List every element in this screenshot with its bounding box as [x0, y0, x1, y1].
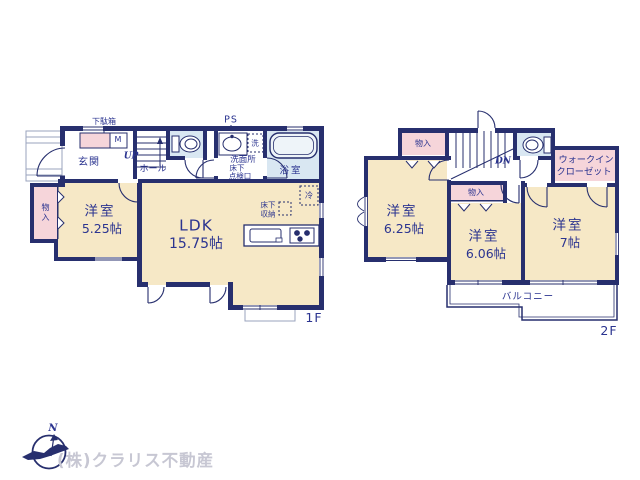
- bedroom4-name: 洋室: [553, 219, 584, 233]
- stairs-up-label: UP: [124, 153, 139, 162]
- terrace-step: [245, 310, 295, 321]
- stairs-down: [451, 131, 513, 179]
- floor-hatch-label-2: 点検口: [229, 172, 252, 180]
- wic-label-1: ウォークイン: [558, 155, 613, 164]
- toilet1-icon: [172, 136, 200, 152]
- company-watermark: (株)クラリス不動産: [57, 447, 214, 471]
- toilet2-icon: [523, 137, 551, 153]
- floorplan-page: 下駄箱 M 玄関 UP ホール PS 洗 洗面所 床下 点検口 浴室 冷 床下 …: [0, 0, 640, 480]
- bedroom4-size: 7帖: [560, 237, 580, 250]
- porch-steps: [26, 131, 62, 181]
- ldk-size: 15.75帖: [169, 237, 223, 251]
- bedroom1-size: 5.25帖: [82, 223, 122, 236]
- ldk-name: LDK: [179, 218, 213, 234]
- washer-label: 洗: [251, 139, 259, 147]
- shoe-cabinet: [80, 133, 110, 148]
- washbasin-icon: [219, 133, 247, 155]
- entrance-label: 玄関: [78, 158, 100, 168]
- balcony-outline: [447, 285, 617, 320]
- bedroom3-name: 洋室: [469, 230, 500, 244]
- kitchen-counter: [244, 225, 319, 246]
- bedroom3-size: 6.06帖: [466, 248, 506, 261]
- compass-north-label: N: [48, 424, 57, 434]
- stairs-up-arrowhead: [157, 137, 163, 144]
- shoe-cabinet-label: 下駄箱: [92, 118, 116, 126]
- bedroom1-name: 洋室: [85, 205, 116, 219]
- storage2b-label: 物入: [468, 189, 484, 197]
- floor2-label: 2F: [600, 325, 617, 338]
- floorplan-drawing: [0, 0, 640, 480]
- floor1-label: 1F: [305, 312, 322, 325]
- stairs-down-label: DN: [495, 158, 511, 167]
- fridge-label: 冷: [305, 192, 313, 200]
- floor-storage-label-2: 収納: [261, 210, 276, 218]
- wic-label-2: クローゼット: [556, 167, 611, 176]
- storage1-label: 物入: [41, 203, 49, 223]
- floor-storage-label-1: 床下: [261, 201, 276, 209]
- balcony-label: バルコニー: [502, 292, 554, 302]
- bedroom2-name: 洋室: [387, 205, 418, 219]
- floor1-plan: [26, 125, 324, 321]
- mirror-label: M: [115, 136, 122, 144]
- bedroom2-size: 6.25帖: [384, 223, 424, 236]
- bathtub-icon: [270, 133, 317, 158]
- storage2a-label: 物入: [415, 140, 431, 148]
- pipe-space-label: PS: [224, 115, 238, 125]
- hall-label: ホール: [139, 166, 166, 175]
- bathroom-label: 浴室: [279, 166, 302, 176]
- bedroom4-floor: [525, 187, 615, 280]
